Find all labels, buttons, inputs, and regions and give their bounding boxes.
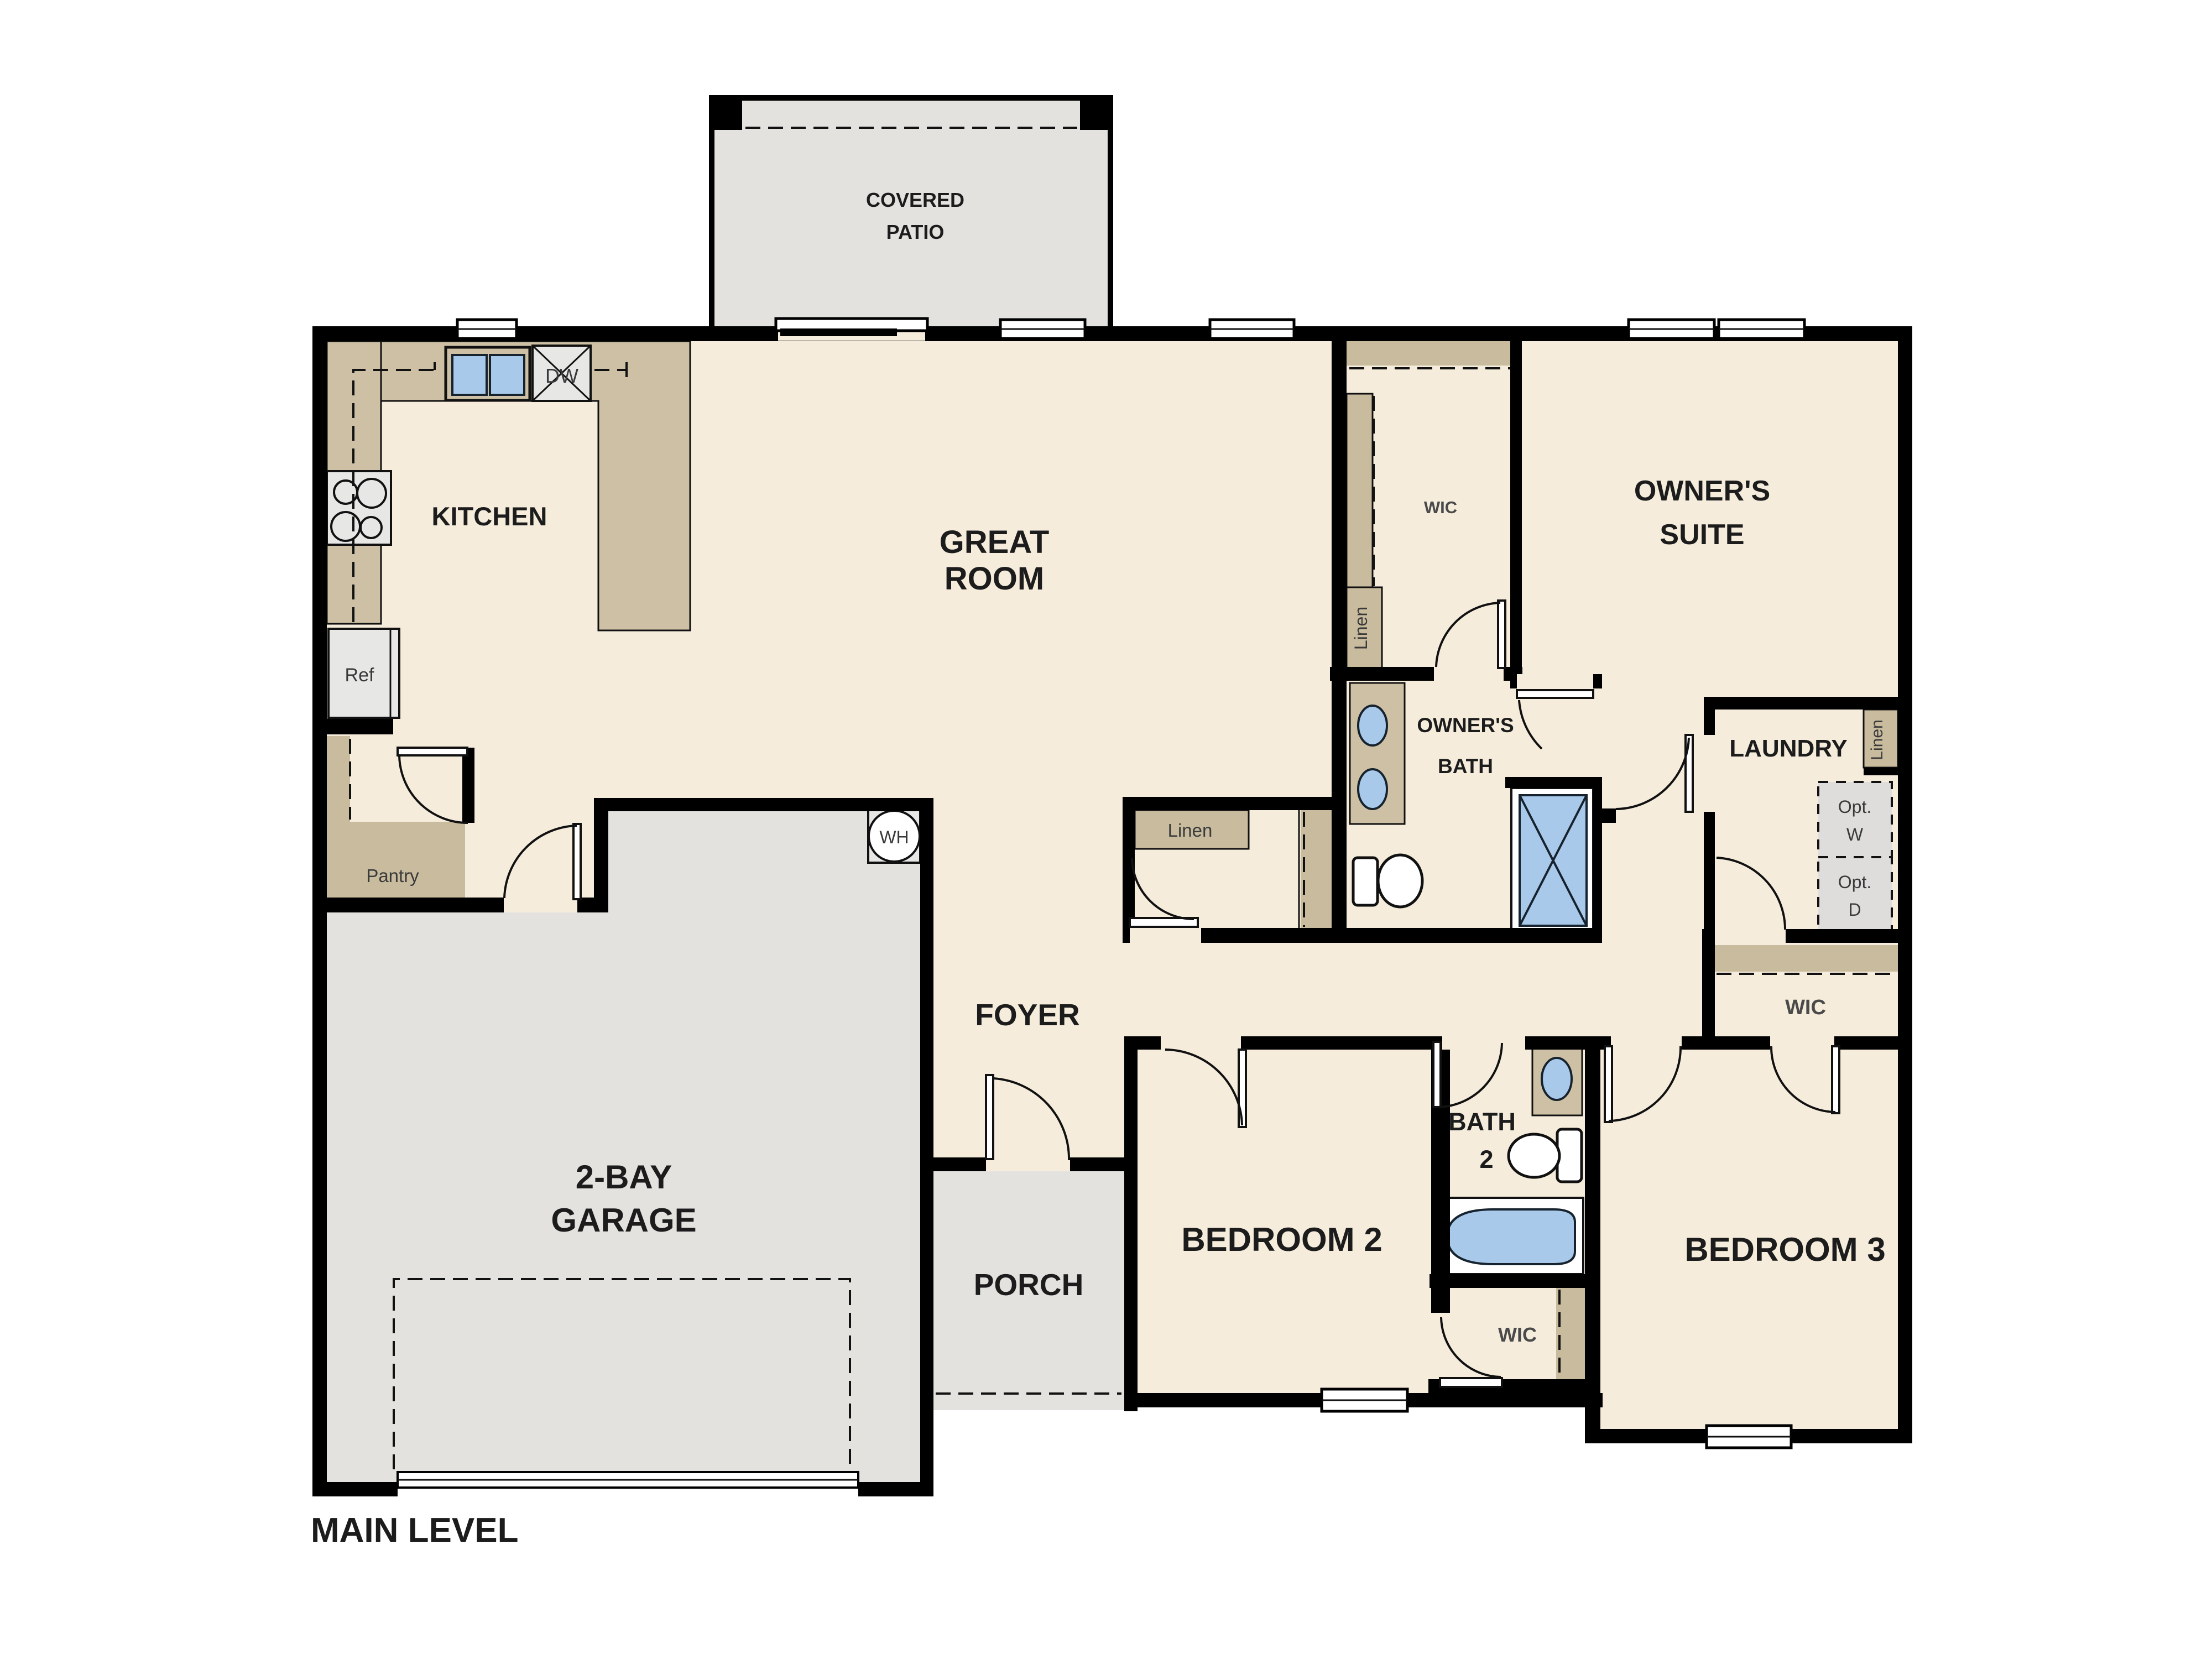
- svg-text:Linen: Linen: [1351, 607, 1371, 650]
- svg-text:WIC: WIC: [1785, 996, 1826, 1019]
- svg-text:BEDROOM 3: BEDROOM 3: [1684, 1231, 1885, 1268]
- svg-text:BATH: BATH: [1448, 1108, 1516, 1136]
- svg-text:2-BAY: 2-BAY: [576, 1159, 672, 1196]
- svg-text:WIC: WIC: [1498, 1323, 1537, 1346]
- svg-text:COVERED: COVERED: [866, 189, 964, 211]
- svg-text:OWNER'S: OWNER'S: [1417, 714, 1514, 737]
- svg-text:WH: WH: [879, 827, 909, 847]
- svg-text:LAUNDRY: LAUNDRY: [1729, 735, 1847, 762]
- svg-text:FOYER: FOYER: [975, 998, 1079, 1032]
- svg-text:KITCHEN: KITCHEN: [432, 502, 547, 531]
- svg-text:ROOM: ROOM: [945, 561, 1044, 597]
- svg-text:D: D: [1848, 900, 1861, 920]
- svg-text:Opt.: Opt.: [1838, 797, 1871, 817]
- svg-text:PORCH: PORCH: [974, 1267, 1084, 1302]
- svg-text:Ref: Ref: [345, 665, 374, 686]
- svg-text:Linen: Linen: [1168, 820, 1213, 841]
- svg-text:PATIO: PATIO: [886, 221, 945, 243]
- svg-text:BATH: BATH: [1438, 755, 1493, 778]
- svg-text:W: W: [1846, 825, 1864, 844]
- svg-text:SUITE: SUITE: [1660, 519, 1744, 551]
- svg-text:WIC: WIC: [1424, 498, 1457, 517]
- svg-text:GREAT: GREAT: [940, 524, 1050, 560]
- svg-text:GARAGE: GARAGE: [551, 1202, 696, 1239]
- svg-text:DW: DW: [545, 364, 578, 387]
- svg-text:2: 2: [1479, 1145, 1493, 1173]
- svg-text:Pantry: Pantry: [366, 865, 419, 886]
- svg-text:BEDROOM 2: BEDROOM 2: [1181, 1221, 1382, 1258]
- svg-text:Opt.: Opt.: [1838, 872, 1871, 892]
- svg-text:Linen: Linen: [1868, 719, 1886, 760]
- svg-text:MAIN LEVEL: MAIN LEVEL: [311, 1511, 518, 1550]
- svg-text:OWNER'S: OWNER'S: [1634, 475, 1770, 507]
